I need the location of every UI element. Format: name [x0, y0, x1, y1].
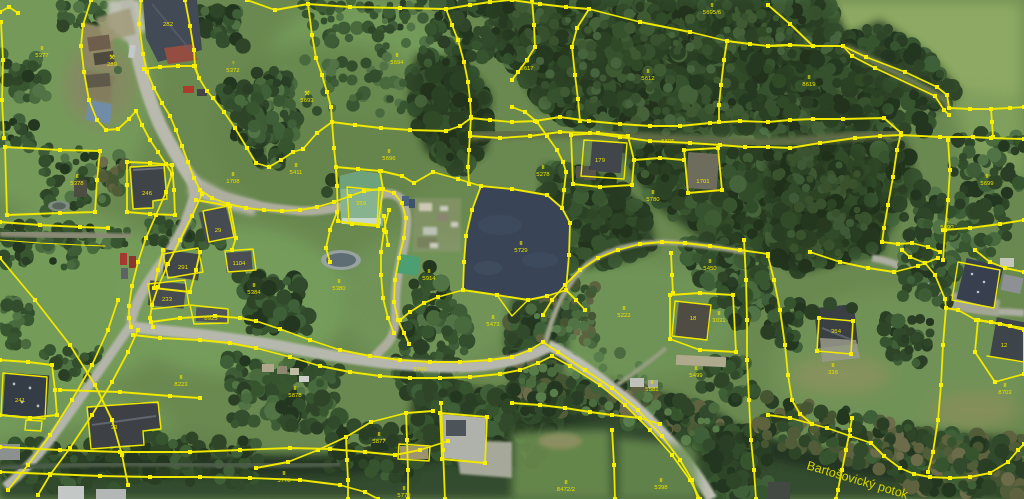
- svg-text:II: II: [651, 189, 655, 195]
- svg-text:5222: 5222: [617, 312, 631, 318]
- svg-text:II: II: [491, 314, 495, 320]
- svg-text:179: 179: [595, 157, 606, 163]
- svg-text:5612: 5612: [641, 75, 655, 81]
- svg-text:18: 18: [690, 315, 697, 321]
- svg-text:5729: 5729: [514, 247, 528, 253]
- svg-text:II: II: [395, 52, 399, 58]
- svg-text:5398: 5398: [654, 484, 668, 490]
- svg-text:5372: 5372: [226, 67, 240, 73]
- svg-text:364: 364: [831, 328, 842, 334]
- svg-text:II: II: [1003, 382, 1007, 388]
- svg-text:5411: 5411: [290, 169, 304, 175]
- svg-text:II: II: [252, 282, 256, 288]
- svg-text:II: II: [293, 385, 297, 391]
- svg-text:289: 289: [107, 61, 118, 67]
- svg-text:5694: 5694: [390, 59, 404, 65]
- svg-text:II: II: [337, 278, 341, 284]
- svg-text:33: 33: [111, 424, 118, 430]
- svg-text:3031: 3031: [712, 317, 726, 323]
- svg-text:5378: 5378: [70, 180, 84, 186]
- svg-text:5693: 5693: [300, 97, 314, 103]
- svg-text:5473: 5473: [486, 321, 500, 327]
- svg-text:1701: 1701: [696, 178, 710, 184]
- svg-text:8223: 8223: [174, 381, 188, 387]
- svg-text:II: II: [646, 68, 650, 74]
- svg-text:II: II: [282, 470, 286, 476]
- svg-text:8472/2: 8472/2: [557, 486, 576, 492]
- svg-text:II: II: [402, 485, 406, 491]
- svg-text:II: II: [387, 148, 391, 154]
- svg-text:1708: 1708: [226, 178, 240, 184]
- svg-text:5384: 5384: [247, 289, 261, 295]
- svg-text:II: II: [564, 479, 568, 485]
- svg-text:5377: 5377: [35, 52, 49, 58]
- svg-text:241: 241: [15, 397, 26, 403]
- svg-text:⚒: ⚒: [109, 54, 115, 60]
- svg-text:5695: 5695: [661, 138, 675, 144]
- svg-text:5878: 5878: [288, 392, 302, 398]
- svg-text:5709: 5709: [413, 366, 427, 372]
- svg-text:II: II: [231, 171, 235, 177]
- svg-text:II: II: [807, 74, 811, 80]
- svg-text:II: II: [377, 431, 381, 437]
- svg-text:5450: 5450: [703, 265, 717, 271]
- svg-text:II: II: [75, 173, 79, 179]
- svg-text:II: II: [710, 2, 714, 8]
- svg-text:5779: 5779: [397, 492, 411, 498]
- svg-text:1104: 1104: [233, 260, 247, 266]
- svg-text:336: 336: [828, 369, 839, 375]
- svg-text:5617: 5617: [520, 65, 534, 71]
- svg-text:II: II: [40, 45, 44, 51]
- svg-text:II: II: [294, 162, 298, 168]
- svg-text:II: II: [650, 379, 654, 385]
- svg-text:12: 12: [1001, 342, 1008, 348]
- svg-text:8703: 8703: [998, 389, 1012, 395]
- svg-text:5695/6: 5695/6: [703, 9, 722, 15]
- svg-text:II: II: [717, 310, 721, 316]
- svg-text:5690: 5690: [940, 224, 954, 230]
- svg-text:8925: 8925: [204, 315, 218, 321]
- svg-text:5380: 5380: [332, 285, 346, 291]
- svg-text:II: II: [694, 365, 698, 371]
- svg-text:II: II: [945, 217, 949, 223]
- svg-text:5499: 5499: [689, 372, 703, 378]
- svg-text:II: II: [427, 268, 431, 274]
- svg-text:29: 29: [215, 227, 222, 233]
- svg-text:5278: 5278: [536, 171, 550, 177]
- svg-text:5877: 5877: [372, 438, 386, 444]
- svg-text:5699: 5699: [980, 180, 994, 186]
- svg-text:8619: 8619: [802, 81, 816, 87]
- svg-text:II: II: [525, 58, 529, 64]
- svg-text:5778: 5778: [277, 477, 291, 483]
- svg-text:233: 233: [162, 296, 173, 302]
- svg-text:5780: 5780: [646, 196, 660, 202]
- svg-text:5914: 5914: [422, 275, 436, 281]
- svg-text:II: II: [519, 240, 523, 246]
- svg-text:282: 282: [163, 21, 174, 27]
- svg-text:5696: 5696: [382, 155, 396, 161]
- svg-text:5581: 5581: [645, 386, 659, 392]
- svg-text:II: II: [985, 173, 989, 179]
- svg-text:246: 246: [142, 190, 153, 196]
- svg-text:291: 291: [178, 264, 189, 270]
- svg-text:♀: ♀: [230, 59, 235, 66]
- svg-text:II: II: [622, 305, 626, 311]
- svg-text:359: 359: [356, 200, 367, 206]
- svg-text:II: II: [179, 374, 183, 380]
- svg-text:II: II: [659, 477, 663, 483]
- svg-text:II: II: [541, 164, 545, 170]
- svg-text:⚒: ⚒: [304, 90, 310, 96]
- svg-text:II: II: [831, 362, 835, 368]
- svg-text:II: II: [708, 258, 712, 264]
